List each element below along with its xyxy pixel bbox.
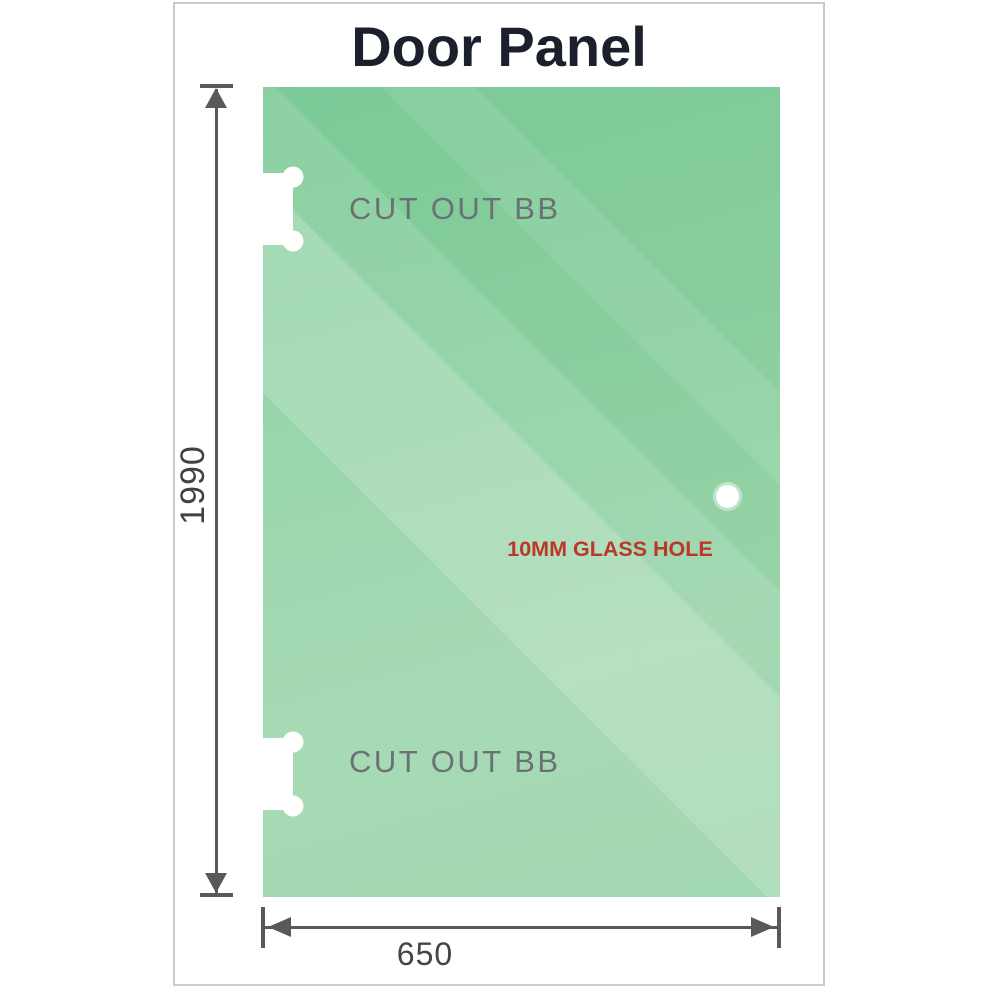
width-dimension-cap-left <box>261 907 265 948</box>
height-dimension-line <box>215 89 218 894</box>
cutout-lobe-top <box>283 732 304 753</box>
cutout-lobe-bottom <box>283 796 304 817</box>
arrowhead-left-icon <box>268 917 291 937</box>
width-dimension-label: 650 <box>380 936 470 973</box>
glass-hole <box>716 485 739 508</box>
diagram-title: Door Panel <box>173 14 825 79</box>
hinge-cutout-bottom-shape <box>261 726 307 822</box>
height-dimension-cap-bottom <box>200 893 233 897</box>
height-dimension-label: 1990 <box>173 423 213 547</box>
cutout-lobe-bottom <box>283 231 304 252</box>
hinge-cutout-top-shape <box>261 161 307 257</box>
arrowhead-down-icon <box>205 873 227 893</box>
cutout-label-bottom: CUT OUT BB <box>349 743 609 781</box>
glass-panel: CUT OUT BB CUT OUT BB 10MM GLASS HOLE <box>263 87 780 897</box>
cutout-lobe-top <box>283 167 304 188</box>
arrowhead-up-icon <box>205 88 227 108</box>
width-dimension-cap-right <box>777 907 781 948</box>
arrowhead-right-icon <box>751 917 774 937</box>
cutout-label-top: CUT OUT BB <box>349 190 609 228</box>
glass-hole-label: 10MM GLASS HOLE <box>480 537 740 562</box>
width-dimension-line <box>265 926 777 929</box>
